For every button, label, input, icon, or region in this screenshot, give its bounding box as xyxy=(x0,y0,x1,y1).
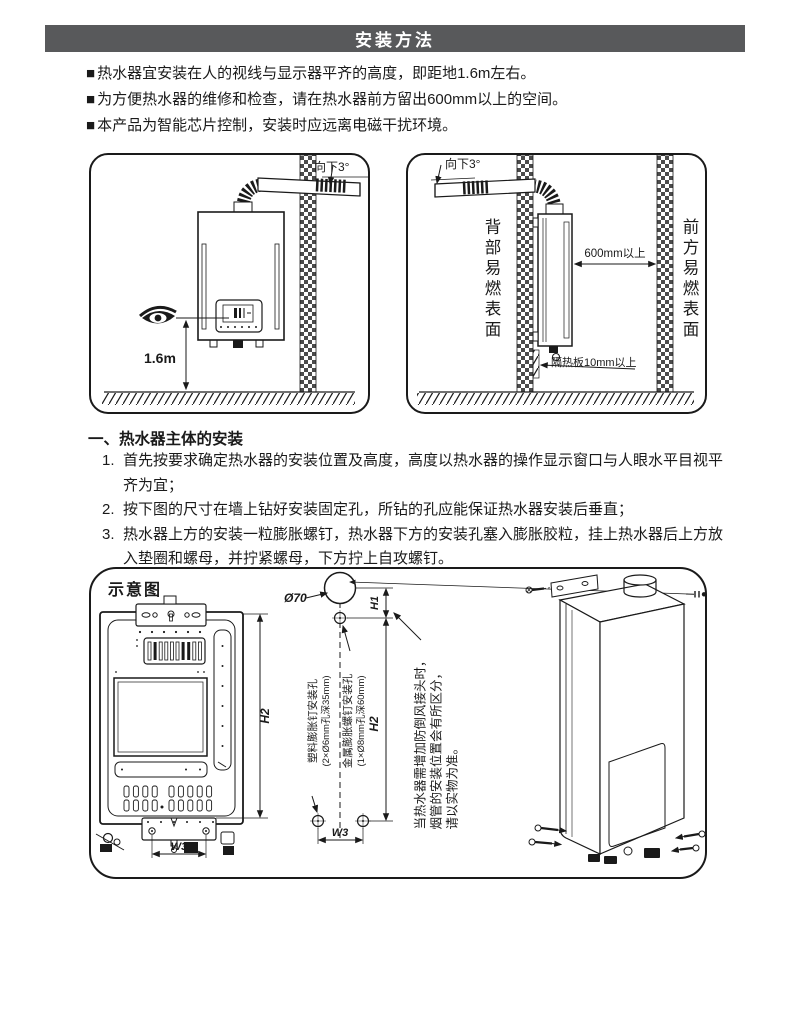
plastic-holes-label: 塑料膨胀钉安装孔 (2×Ø6mm孔深35mm) xyxy=(307,651,333,791)
screws-bottom-right xyxy=(672,831,705,851)
floor-hatch xyxy=(417,393,694,405)
front-brick-wall xyxy=(657,155,673,392)
flue-note-line1: 当热水器需增加防倒风接头时， xyxy=(413,595,429,830)
metal-hole-line1: 金属膨胀螺钉安装孔 xyxy=(342,651,355,791)
bullet-square-icon: ■ xyxy=(86,61,95,87)
water-heater-front xyxy=(198,202,284,348)
metal-hole-line2: (1×Ø8mm孔深60mm) xyxy=(355,651,368,791)
screw-top-left xyxy=(526,587,552,593)
diagram-clearance-drawing xyxy=(405,152,708,415)
metal-hole-label: 金属膨胀螺钉安装孔 (1×Ø8mm孔深60mm) xyxy=(342,651,368,791)
water-heater-side xyxy=(533,204,572,361)
flue-hole xyxy=(325,573,356,604)
section-title: 一、热水器主体的安装 xyxy=(88,427,243,449)
heater-3d-view xyxy=(526,575,706,864)
notice-item: ■ 本产品为智能芯片控制，安装时应远离电磁干扰环境。 xyxy=(86,113,736,139)
front-clearance-label: 600mm以上 xyxy=(573,245,657,261)
heater-back-view xyxy=(96,596,243,855)
step-number: 2. xyxy=(102,498,123,523)
schematic-title: 示意图 xyxy=(108,576,162,600)
h1-label: H1 xyxy=(369,596,381,610)
section-header-bar: 安装方法 xyxy=(45,25,745,52)
diagram-clearance: 向下3° 背部易燃表面 前方易燃表面 600mm以上 隔热板10mm以上 xyxy=(405,152,708,415)
insulation-board xyxy=(533,350,539,378)
tilt-label: 向下3° xyxy=(314,158,349,175)
diagram-eye-level: 1.6m 向下3° xyxy=(88,152,371,415)
w3-template-label: W3 xyxy=(332,827,349,839)
tilt-label: 向下3° xyxy=(445,155,480,172)
plastic-label-leader xyxy=(312,796,317,812)
plastic-holes-line1: 塑料膨胀钉安装孔 xyxy=(307,651,320,791)
flue-hole-label: Ø70 xyxy=(284,591,307,605)
notice-item: ■ 热水器宜安装在人的视线与显示器平齐的高度，即距地1.6m左右。 xyxy=(86,61,736,87)
flue-pipe xyxy=(435,179,555,212)
bullet-square-icon: ■ xyxy=(86,113,95,139)
step-number: 3. xyxy=(102,523,123,572)
floor-hatch xyxy=(102,393,355,405)
notice-text: 为方便热水器的维修和检查，请在热水器前方留出600mm以上的空间。 xyxy=(97,87,567,113)
step-text: 按下图的尺寸在墙上钻好安装固定孔，所钻的孔应能保证热水器安装后垂直； xyxy=(123,498,734,523)
section-header-title: 安装方法 xyxy=(355,26,435,51)
bullet-square-icon: ■ xyxy=(86,87,95,113)
notice-item: ■ 为方便热水器的维修和检查，请在热水器前方留出600mm以上的空间。 xyxy=(86,87,736,113)
notice-text: 本产品为智能芯片控制，安装时应远离电磁干扰环境。 xyxy=(97,113,457,139)
diagram-eye-level-drawing: 1.6m xyxy=(88,152,371,415)
step-item: 3. 热水器上方的安装一粒膨胀螺钉，热水器下方的安装孔塞入膨胀胶粒，挂上热水器后… xyxy=(102,523,734,572)
front-surface-label: 前方易燃表面 xyxy=(677,218,701,341)
schematic-drawing: H2 W3 Ø70 H1 xyxy=(88,566,708,880)
flue-note-line2: 烟管的安装位置会有所区分， xyxy=(429,595,445,830)
eye-icon xyxy=(140,307,176,323)
flue-note: 当热水器需增加防倒风接头时， 烟管的安装位置会有所区分， 请以实物为准。 xyxy=(413,595,461,830)
notice-list: ■ 热水器宜安装在人的视线与显示器平齐的高度，即距地1.6m左右。 ■ 为方便热… xyxy=(86,61,736,139)
eye-height-label: 1.6m xyxy=(144,350,176,366)
metal-label-leader xyxy=(343,626,350,651)
dimension-eye-height: 1.6m xyxy=(144,321,186,389)
step-item: 1. 首先按要求确定热水器的安装位置及高度，高度以热水器的操作显示窗口与人眼水平… xyxy=(102,449,734,498)
step-text: 首先按要求确定热水器的安装位置及高度，高度以热水器的操作显示窗口与人眼水平目视平… xyxy=(123,449,734,498)
insulation-label: 隔热板10mm以上 xyxy=(551,354,637,370)
step-text: 热水器上方的安装一粒膨胀螺钉，热水器下方的安装孔塞入膨胀胶粒，挂上热水器后上方放… xyxy=(123,523,734,572)
schematic-panel: H2 W3 Ø70 H1 xyxy=(88,566,708,880)
flue-note-line3: 请以实物为准。 xyxy=(445,595,461,830)
step-list: 1. 首先按要求确定热水器的安装位置及高度，高度以热水器的操作显示窗口与人眼水平… xyxy=(102,449,734,572)
w3-label: W3 xyxy=(171,841,188,853)
manual-page: 安装方法 ■ 热水器宜安装在人的视线与显示器平齐的高度，即距地1.6m左右。 ■… xyxy=(0,0,790,1016)
plastic-holes-line2: (2×Ø6mm孔深35mm) xyxy=(320,651,333,791)
h2-template-label: H2 xyxy=(367,716,381,732)
step-item: 2. 按下图的尺寸在墙上钻好安装固定孔，所钻的孔应能保证热水器安装后垂直； xyxy=(102,498,734,523)
screw-top-right xyxy=(686,591,706,598)
notice-text: 热水器宜安装在人的视线与显示器平齐的高度，即距地1.6m左右。 xyxy=(97,61,535,87)
h2-label: H2 xyxy=(258,708,272,724)
step-number: 1. xyxy=(102,449,123,498)
rear-surface-label: 背部易燃表面 xyxy=(479,218,503,341)
